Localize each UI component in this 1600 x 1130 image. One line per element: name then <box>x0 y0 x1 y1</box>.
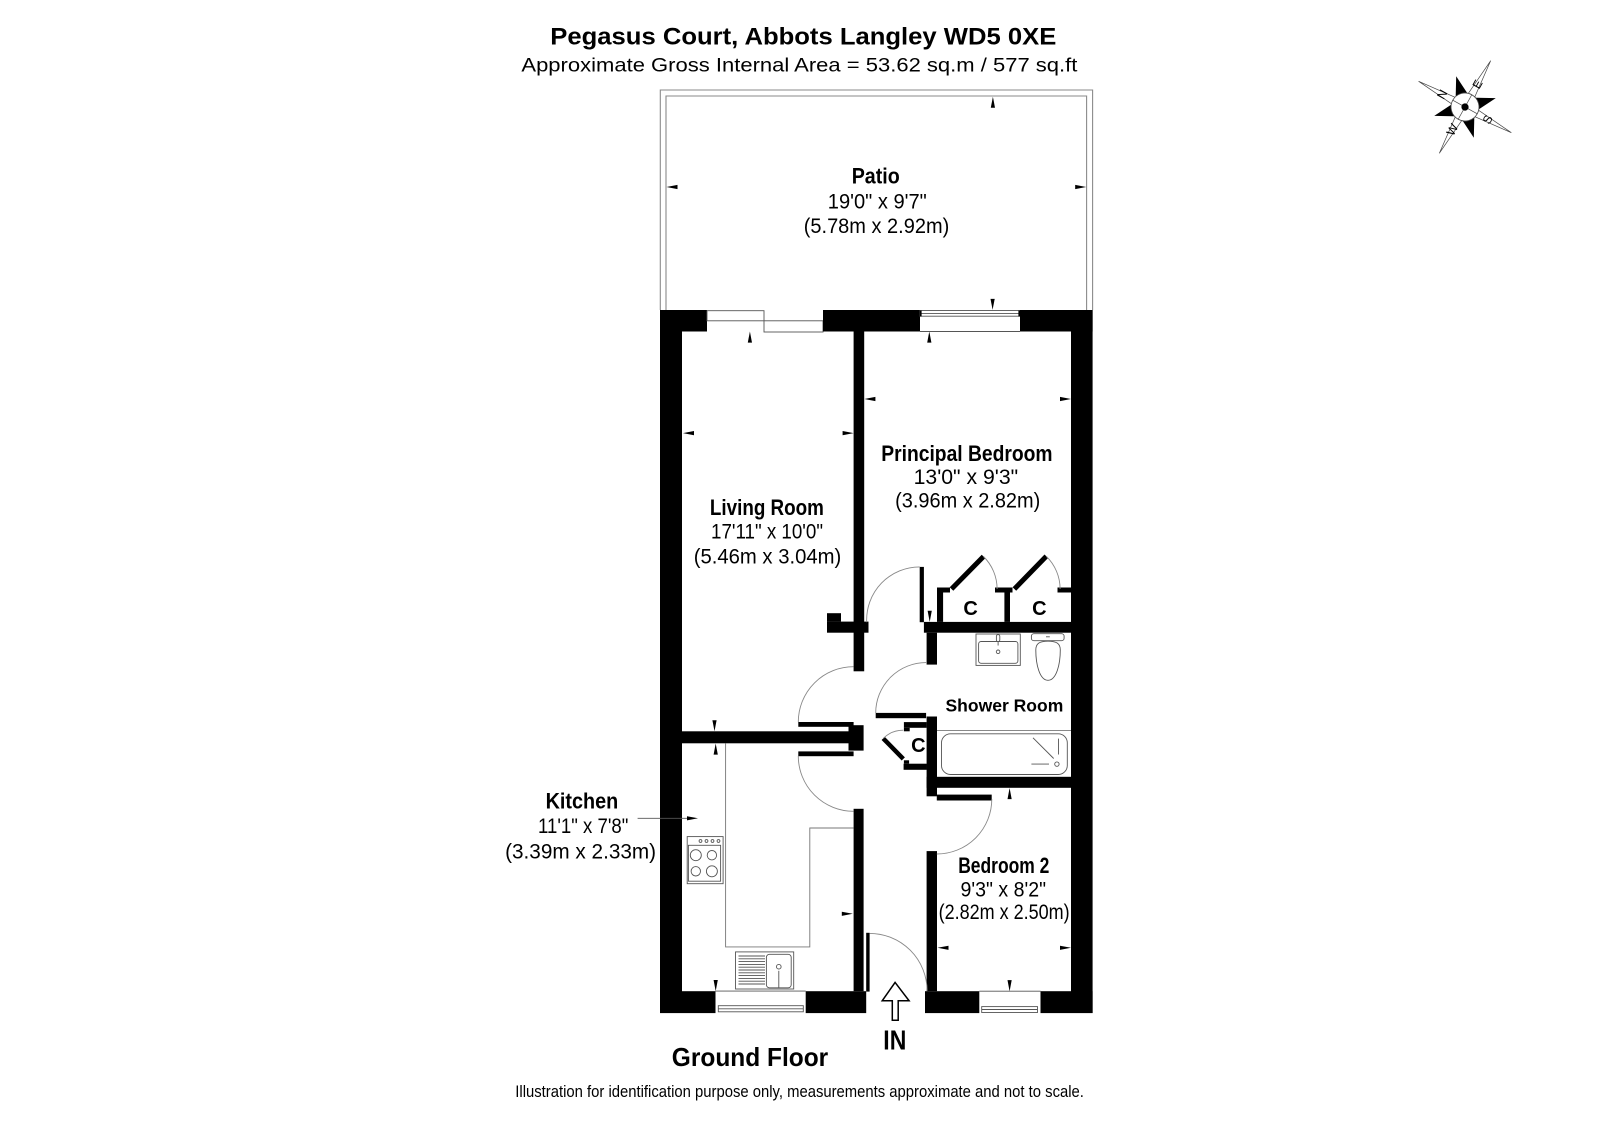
svg-text:(3.96m x 2.82m): (3.96m x 2.82m) <box>895 490 1040 513</box>
svg-text:IN: IN <box>883 1025 906 1056</box>
svg-text:Ground Floor: Ground Floor <box>672 1042 828 1072</box>
svg-text:Approximate Gross Internal Are: Approximate Gross Internal Area = 53.62 … <box>521 55 1078 77</box>
svg-text:Principal Bedroom: Principal Bedroom <box>881 441 1052 466</box>
svg-text:(5.78m x 2.92m): (5.78m x 2.92m) <box>804 215 950 238</box>
svg-text:Living Room: Living Room <box>710 495 824 520</box>
svg-text:9'3" x 8'2": 9'3" x 8'2" <box>961 879 1047 902</box>
svg-text:Patio: Patio <box>852 164 900 189</box>
svg-text:Bedroom 2: Bedroom 2 <box>958 853 1049 878</box>
svg-text:(2.82m x 2.50m): (2.82m x 2.50m) <box>939 901 1070 924</box>
svg-text:13'0" x 9'3": 13'0" x 9'3" <box>914 466 1019 489</box>
svg-text:Kitchen: Kitchen <box>546 789 619 814</box>
svg-text:17'11" x 10'0": 17'11" x 10'0" <box>711 521 823 544</box>
svg-text:(3.39m x 2.33m): (3.39m x 2.33m) <box>505 841 656 864</box>
svg-text:Shower Room: Shower Room <box>946 696 1064 716</box>
svg-text:C: C <box>963 598 977 620</box>
svg-text:C: C <box>1032 598 1046 620</box>
svg-text:Pegasus Court, Abbots Langley: Pegasus Court, Abbots Langley WD5 0XE <box>550 24 1056 51</box>
svg-text:C: C <box>911 735 925 757</box>
svg-text:(5.46m x 3.04m): (5.46m x 3.04m) <box>694 546 842 569</box>
svg-text:19'0" x 9'7": 19'0" x 9'7" <box>828 191 927 214</box>
svg-text:Illustration for identificatio: Illustration for identification purpose … <box>515 1082 1084 1101</box>
svg-text:11'1" x 7'8": 11'1" x 7'8" <box>538 815 628 838</box>
